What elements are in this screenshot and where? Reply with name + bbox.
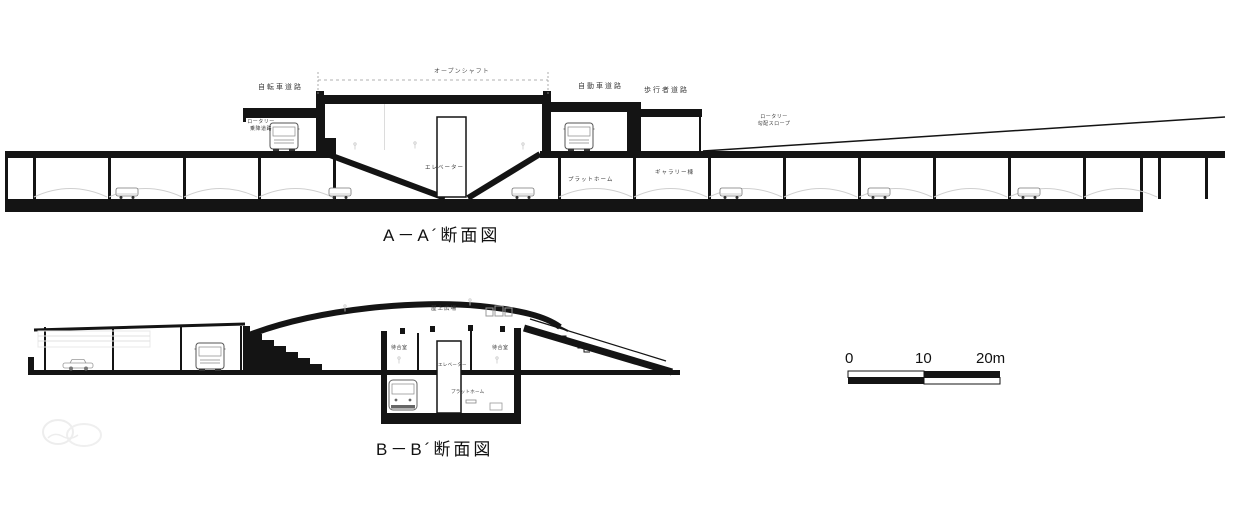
person-icon [522,143,524,150]
section-a-drawing [5,72,1225,212]
exterior-stair [524,319,672,372]
train-icon [329,188,351,199]
label-gallery: ギャラリー棟 [655,170,694,177]
section-a-title: A－A´断面図 [383,221,500,246]
person-icon [354,143,356,150]
label-elevator-b: エレベーター [438,362,467,368]
scale-tick-10: 10 [915,350,932,367]
scale-tick-0: 0 [845,350,853,367]
label-open-shaft: オープンシャフト [434,69,490,77]
train-icon [1018,188,1040,199]
faint-stamp [43,420,101,446]
bus-icon [195,343,226,371]
train-icon [389,380,417,410]
scale-bar [848,371,1000,384]
car-road-block [551,102,702,152]
section-line-art [0,0,1250,508]
elevator-shaft [437,117,466,197]
label-rotary-boarding: ロータリー 乗降道路 [246,119,276,132]
car-icon [63,360,93,371]
train-icon [868,188,890,199]
central-hall [316,91,551,198]
track-level-trains [116,188,1040,199]
ground-slab-right [540,151,1225,158]
ground-slab-left [8,151,336,158]
label-platform-a: プラットホーム [568,177,613,184]
ground-line [28,370,680,375]
gallery-arches [34,189,1157,198]
bus-icon [564,123,595,151]
label-rooftop-plaza: 屋上広場 [431,306,457,313]
person-icon [414,142,416,149]
dimension-line-open-shaft [318,72,548,94]
person-icon [398,357,400,364]
train-icon [512,188,534,199]
label-elevator-a: エレベーター [425,165,464,172]
parking-shed [34,324,245,371]
platform-base-slab [5,199,1143,212]
entrance-stair-mass [250,334,322,371]
train-icon [720,188,742,199]
label-bicycle-road: 自転車道路 [258,83,303,92]
label-platform-b: プラットホーム [451,389,484,395]
elevator-shaft-b [437,341,461,413]
person-icon [496,357,498,364]
label-waiting-room-right: 待合室 [492,345,509,352]
label-pedestrian-road: 歩行者道路 [644,86,689,95]
label-waiting-room-left: 待合室 [391,345,408,352]
bench-icon [466,400,476,403]
station-box [381,325,521,424]
label-rotary-slope: ロータリー 勾配スロープ [746,114,802,127]
label-car-road: 自動車道路 [578,82,623,91]
architectural-drawing-sheet: 自転車道路 オープンシャフト 自動車道路 歩行者道路 ロータリー 乗降道路 ロー… [0,0,1250,508]
section-b-drawing [28,299,680,424]
section-b-title: B－B´断面図 [376,435,493,460]
scale-tick-20m: 20m [976,350,1005,367]
train-icon [116,188,138,199]
